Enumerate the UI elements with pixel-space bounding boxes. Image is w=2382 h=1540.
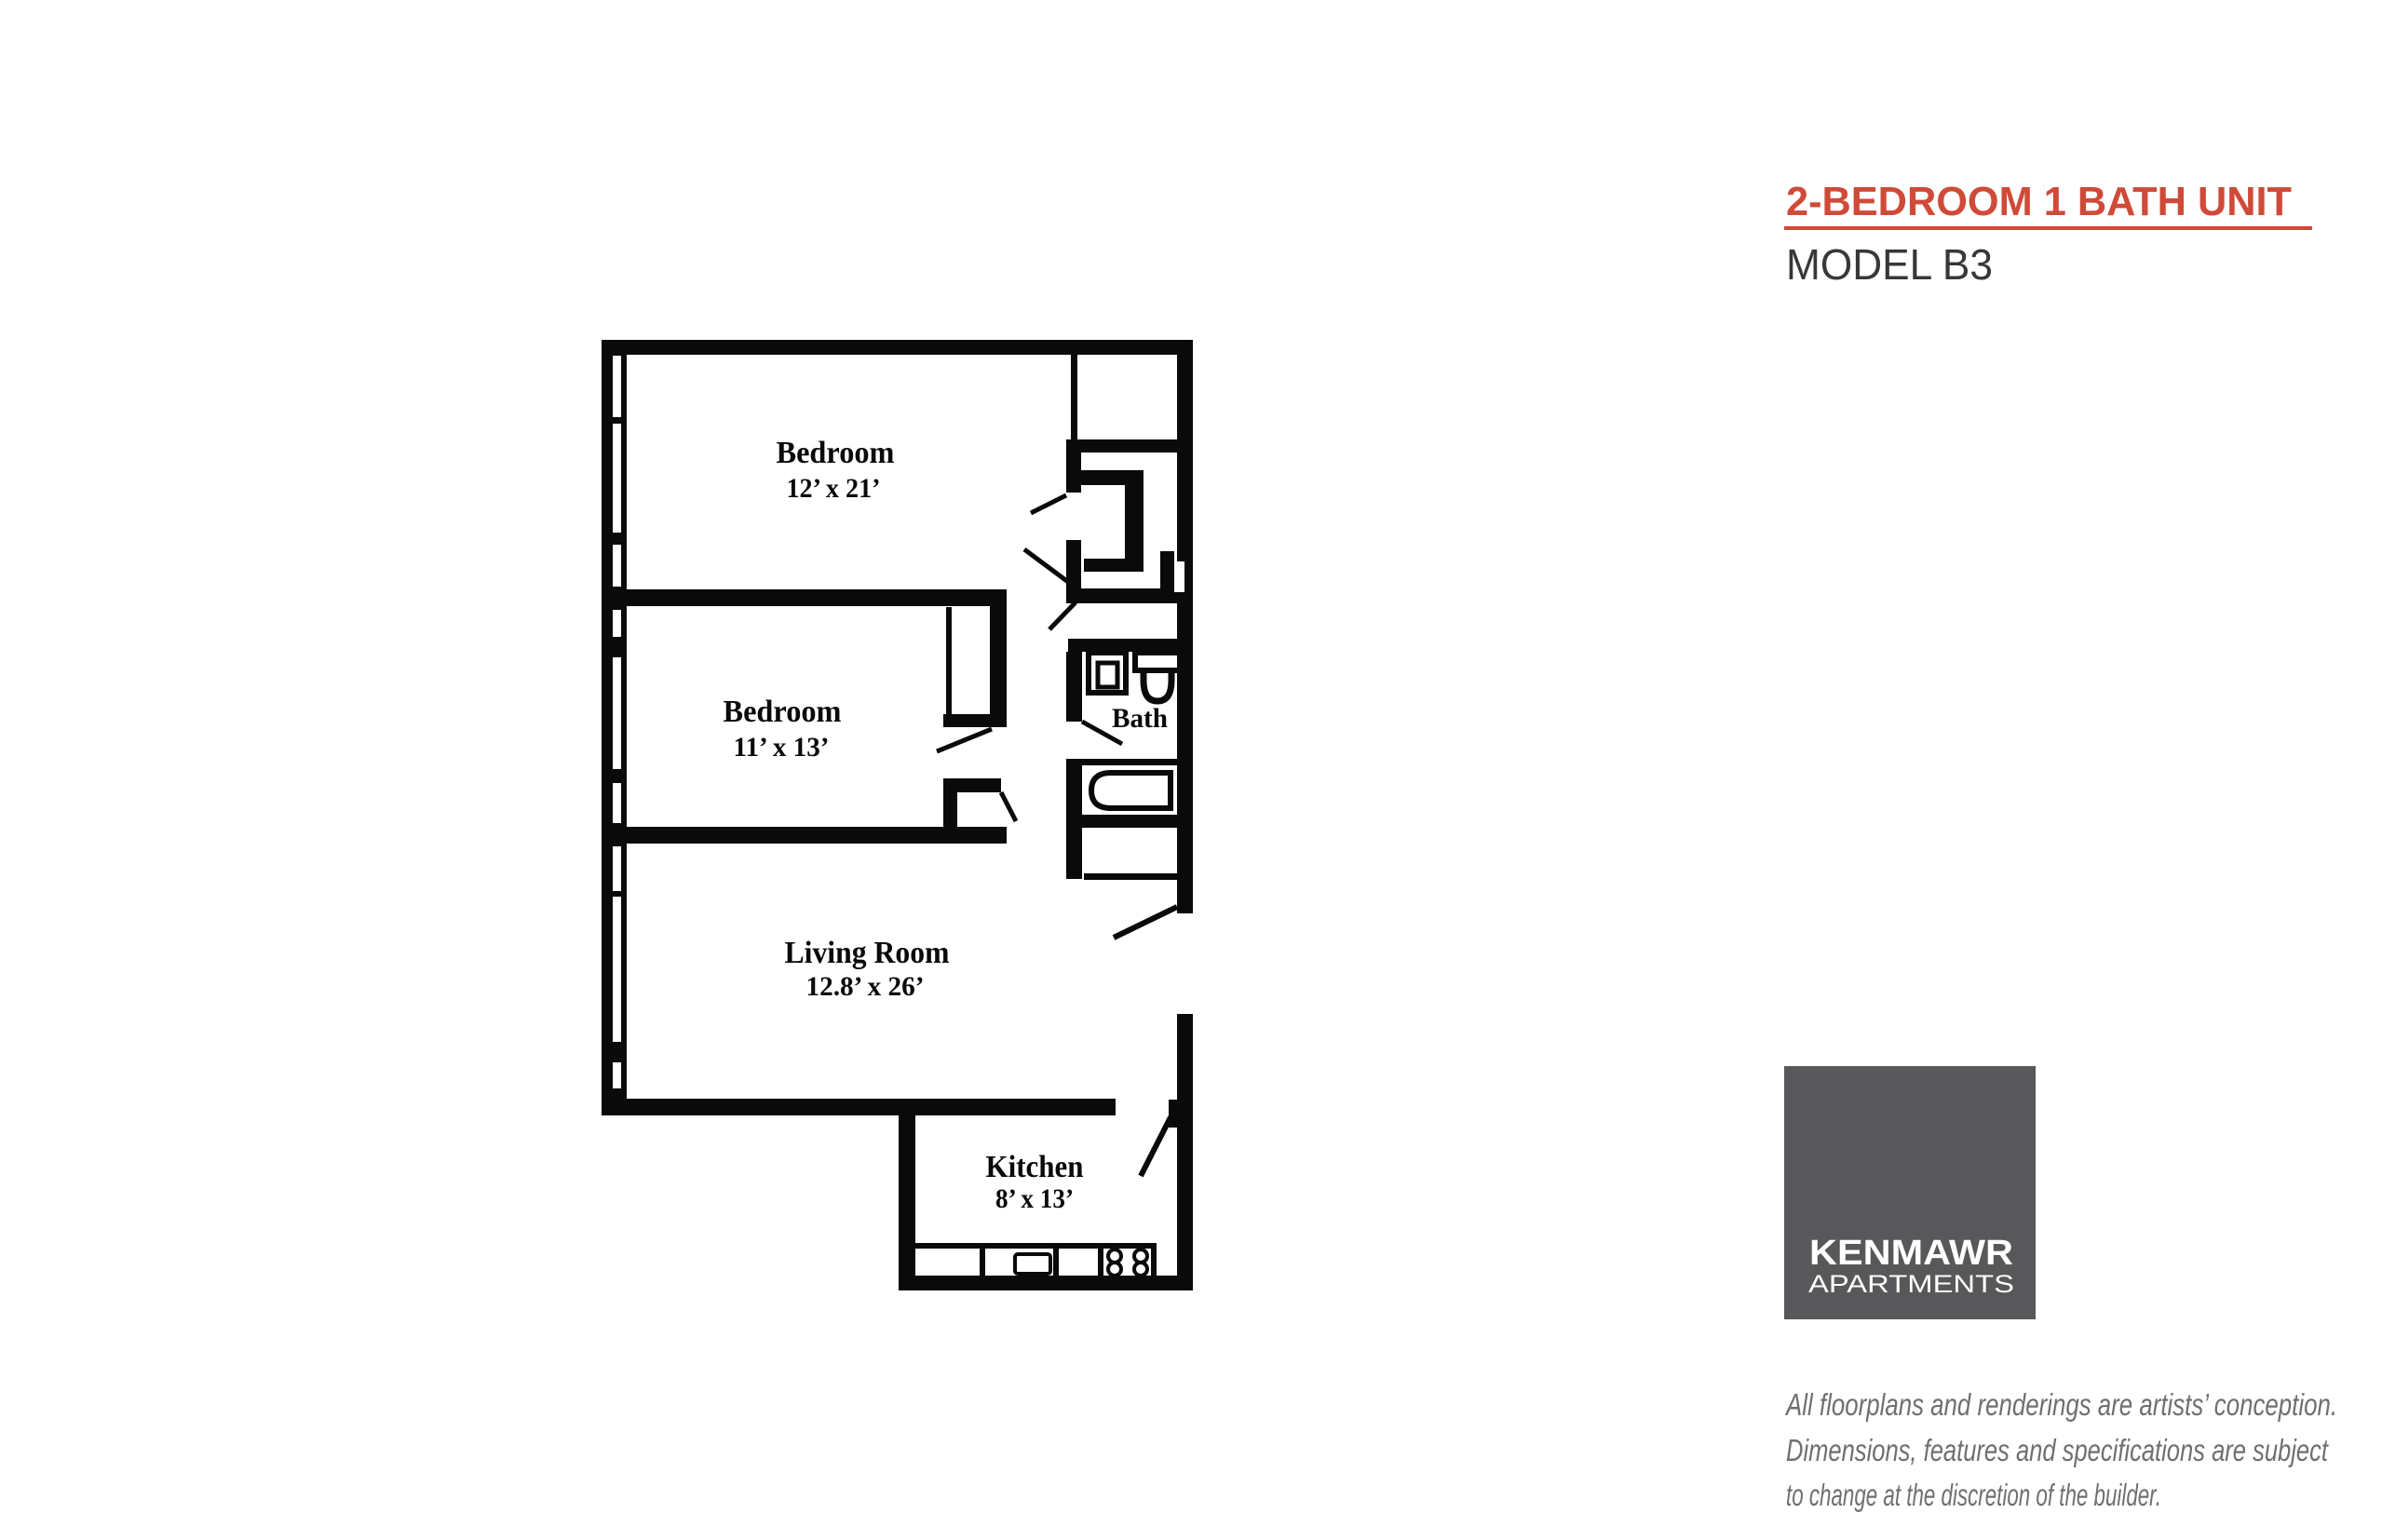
svg-text:Bath: Bath: [1112, 703, 1168, 734]
svg-text:to change at the discretion of: to change at the discretion of the build…: [1786, 1478, 2161, 1512]
svg-text:Bedroom: Bedroom: [777, 436, 895, 470]
svg-text:APARTMENTS: APARTMENTS: [1808, 1270, 2014, 1298]
svg-text:12’ x 21’: 12’ x 21’: [787, 473, 881, 504]
svg-text:All floorplans and renderings: All floorplans and renderings are artist…: [1784, 1387, 2337, 1422]
svg-text:Kitchen: Kitchen: [986, 1150, 1084, 1184]
svg-text:8’ x 13’: 8’ x 13’: [995, 1183, 1074, 1214]
svg-text:12.8’ x 26’: 12.8’ x 26’: [806, 971, 925, 1002]
svg-text:Dimensions, features and speci: Dimensions, features and specifications …: [1786, 1433, 2329, 1467]
svg-text:KENMAWR: KENMAWR: [1809, 1234, 2013, 1273]
svg-text:MODEL B3: MODEL B3: [1786, 240, 1993, 289]
svg-text:11’ x 13’: 11’ x 13’: [734, 732, 830, 763]
svg-text:Bedroom: Bedroom: [724, 695, 842, 729]
svg-text:Living Room: Living Room: [785, 936, 950, 970]
svg-text:2-BEDROOM 1 BATH UNIT: 2-BEDROOM 1 BATH UNIT: [1786, 179, 2292, 224]
